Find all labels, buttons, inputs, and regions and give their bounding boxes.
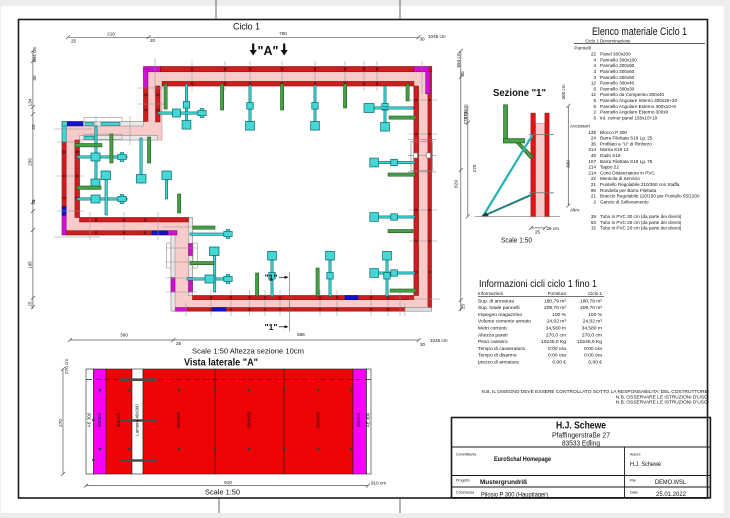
- svg-text:210: 210: [107, 32, 115, 37]
- svg-text:Pannello 300x40: Pannello 300x40: [600, 81, 635, 86]
- svg-text:Ciclo 1: Ciclo 1: [233, 22, 260, 32]
- svg-text:2: 2: [593, 199, 596, 204]
- svg-text:Sup. totale pannelli: Sup. totale pannelli: [478, 305, 520, 311]
- svg-text:Puntello Regolabile 210/360 co: Puntello Regolabile 210/360 con Staffa: [600, 182, 680, 187]
- svg-text:910: 910: [224, 480, 232, 485]
- svg-text:24,02 m³: 24,02 m³: [583, 319, 603, 325]
- svg-text:Volume cemento armato: Volume cemento armato: [478, 319, 531, 325]
- svg-text:270,0 cm: 270,0 cm: [582, 332, 602, 338]
- svg-text:Informazioni: Informazioni: [478, 291, 503, 296]
- svg-text:25: 25: [176, 341, 182, 346]
- svg-text:300 cm: 300 cm: [561, 84, 566, 99]
- svg-text:5: 5: [593, 98, 596, 103]
- svg-text:Altro: Altro: [570, 208, 580, 213]
- svg-text:Panel 300x200: Panel 300x200: [600, 52, 631, 57]
- svg-text:270: 270: [58, 419, 63, 427]
- svg-text:Pilosio P 300 (Hauptlager): Pilosio P 300 (Hauptlager): [481, 491, 548, 498]
- svg-text:Morsa S19 13: Morsa S19 13: [600, 147, 629, 152]
- svg-text:20: 20: [150, 38, 156, 43]
- svg-text:12: 12: [591, 81, 597, 86]
- svg-text:File: File: [630, 479, 636, 483]
- svg-text:25: 25: [31, 199, 36, 205]
- svg-text:Dado S19: Dado S19: [600, 153, 621, 158]
- svg-text:prezzo di armatura: prezzo di armatura: [478, 360, 519, 366]
- svg-text:6: 6: [593, 115, 596, 120]
- svg-text:270 cm: 270 cm: [463, 104, 468, 119]
- svg-text:Pannello da Compenso 300x40: Pannello da Compenso 300x40: [600, 92, 665, 97]
- svg-text:Autore: Autore: [630, 453, 641, 457]
- svg-text:0,00 €: 0,00 €: [552, 360, 566, 366]
- svg-text:1045 cm: 1045 cm: [430, 338, 448, 343]
- svg-text:N.B. OSSERVARE LE ISTRUZIONI D: N.B. OSSERVARE LE ISTRUZIONI D'USO!: [616, 394, 709, 400]
- svg-text:"1": "1": [265, 322, 278, 332]
- svg-text:135: 135: [588, 130, 596, 135]
- svg-text:Ciclo 1: Ciclo 1: [588, 291, 602, 296]
- svg-text:Vista laterale "A": Vista laterale "A": [184, 358, 258, 369]
- svg-text:Tubo in PVC 25 cm (da parte de: Tubo in PVC 25 cm (da parte dei clienti): [600, 220, 682, 225]
- svg-text:134: 134: [28, 98, 33, 106]
- svg-text:30: 30: [32, 75, 37, 81]
- svg-text:36: 36: [591, 141, 597, 146]
- svg-text:0:00 ora: 0:00 ora: [584, 346, 602, 352]
- svg-text:Metri correnti: Metri correnti: [478, 326, 507, 332]
- svg-text:Committente: Committente: [456, 453, 476, 457]
- svg-text:Tappo 22: Tappo 22: [600, 165, 619, 170]
- svg-text:H.J. Schewe: H.J. Schewe: [630, 461, 661, 468]
- svg-text:Lamiera 40x300: Lamiera 40x300: [135, 404, 140, 436]
- svg-text:200x300: 200x300: [316, 411, 321, 428]
- svg-text:Accessori: Accessori: [570, 124, 590, 129]
- svg-text:0:00 ora: 0:00 ora: [548, 346, 566, 352]
- svg-text:DEMO.WSL: DEMO.WSL: [655, 479, 686, 486]
- svg-text:3: 3: [593, 69, 596, 74]
- svg-text:Peso cassero: Peso cassero: [478, 339, 508, 345]
- svg-text:200x300: 200x300: [176, 411, 181, 428]
- svg-text:3: 3: [593, 75, 596, 80]
- svg-text:Pannello 300x30: Pannello 300x30: [600, 86, 635, 91]
- svg-text:270: 270: [472, 164, 477, 172]
- svg-text:300: 300: [566, 160, 571, 168]
- svg-text:270 cm: 270 cm: [64, 359, 69, 374]
- svg-text:34,580 m: 34,580 m: [546, 326, 566, 332]
- svg-text:10245,0 Kg: 10245,0 Kg: [577, 339, 602, 345]
- svg-text:0:00 ora: 0:00 ora: [548, 353, 566, 359]
- svg-text:34,580 m: 34,580 m: [582, 326, 602, 332]
- svg-text:Mustergrundriß: Mustergrundriß: [480, 479, 527, 486]
- svg-text:40x300: 40x300: [356, 412, 361, 427]
- svg-text:15: 15: [591, 226, 597, 231]
- svg-text:Pannello 300x90: Pannello 300x90: [600, 63, 635, 68]
- svg-text:910 cm: 910 cm: [371, 481, 386, 486]
- svg-text:"1": "1": [265, 273, 278, 283]
- svg-text:214: 214: [588, 165, 596, 170]
- svg-text:214: 214: [588, 147, 596, 152]
- svg-text:Sezione "1": Sezione "1": [493, 87, 546, 99]
- svg-text:Pannello 300x50: Pannello 300x50: [600, 75, 635, 80]
- svg-text:Ciclo 1 Denominazione: Ciclo 1 Denominazione: [585, 38, 631, 43]
- svg-text:180,79 m²: 180,79 m²: [580, 298, 602, 304]
- svg-text:21: 21: [591, 182, 597, 187]
- svg-text:Pannello Angolare Esterno 300x: Pannello Angolare Esterno 300x10+5: [600, 104, 676, 109]
- svg-text:1045 cm: 1045 cm: [428, 34, 446, 39]
- svg-text:Impegno magazzino: Impegno magazzino: [478, 312, 522, 318]
- svg-text:780: 780: [279, 31, 287, 36]
- svg-text:83533 Edling: 83533 Edling: [562, 438, 600, 447]
- svg-text:22: 22: [591, 176, 597, 181]
- svg-text:107: 107: [588, 159, 596, 164]
- svg-text:39: 39: [591, 214, 597, 219]
- svg-text:AE 300: AE 300: [366, 412, 371, 427]
- svg-text:90x300: 90x300: [116, 412, 121, 427]
- svg-text:Int. corner panel 150x10+10: Int. corner panel 150x10+10: [600, 115, 658, 120]
- svg-text:24: 24: [591, 136, 597, 141]
- svg-text:25: 25: [535, 229, 541, 234]
- svg-text:25 cm: 25 cm: [547, 226, 560, 231]
- svg-text:25: 25: [71, 39, 77, 44]
- svg-text:665: 665: [297, 332, 305, 337]
- svg-text:10245,0 Kg: 10245,0 Kg: [541, 339, 566, 345]
- svg-text:4: 4: [593, 63, 596, 68]
- svg-text:Tubo in PVC 30 cm (da parte de: Tubo in PVC 30 cm (da parte dei clienti): [600, 214, 682, 219]
- svg-text:2: 2: [593, 110, 596, 115]
- svg-text:Blocco P 300: Blocco P 300: [600, 130, 627, 135]
- svg-text:Progetto: Progetto: [456, 479, 470, 483]
- svg-text:25.01.2022: 25.01.2022: [656, 491, 686, 498]
- svg-text:Barra Filettata S19 Lg. 25: Barra Filettata S19 Lg. 25: [600, 136, 653, 141]
- svg-text:Tubo in PVC 20 cm (da parte de: Tubo in PVC 20 cm (da parte dei clienti): [600, 226, 682, 231]
- svg-text:694 cm: 694 cm: [456, 52, 461, 67]
- svg-text:Barra Filettata S19 Lg. 75: Barra Filettata S19 Lg. 75: [600, 159, 653, 164]
- svg-text:40x300: 40x300: [97, 412, 102, 427]
- svg-text:30: 30: [420, 342, 426, 347]
- svg-text:30: 30: [420, 37, 426, 42]
- svg-text:53: 53: [591, 220, 597, 225]
- svg-text:20: 20: [31, 124, 36, 130]
- svg-text:N.B. OSSERVARE LE ISTRUZIONI D: N.B. OSSERVARE LE ISTRUZIONI D'USO!: [616, 400, 709, 406]
- svg-text:N.B. IL DISEGNO DEVE ESSERE CO: N.B. IL DISEGNO DEVE ESSERE CONTROLLATO …: [482, 389, 710, 395]
- svg-text:Rondella per Barra Filettata: Rondella per Barra Filettata: [600, 188, 657, 193]
- svg-text:209,70 m²: 209,70 m²: [544, 305, 566, 311]
- svg-text:25: 25: [28, 301, 33, 307]
- svg-text:12: 12: [591, 92, 597, 97]
- svg-text:EuroSchal Homepage: EuroSchal Homepage: [494, 456, 551, 463]
- svg-text:195: 195: [28, 261, 33, 269]
- svg-text:AE 300: AE 300: [87, 412, 92, 427]
- svg-text:Sup. di armatura: Sup. di armatura: [478, 298, 514, 304]
- svg-text:Gancio di Sollevamento: Gancio di Sollevamento: [600, 199, 649, 204]
- svg-text:22: 22: [591, 52, 597, 57]
- svg-text:4: 4: [593, 57, 596, 62]
- svg-text:Pannello 300x60: Pannello 300x60: [600, 69, 635, 74]
- svg-text:Pannello Angolare Interno 300x: Pannello Angolare Interno 300x25+20: [600, 98, 677, 103]
- svg-text:Pannello 300x100: Pannello 300x100: [600, 57, 637, 62]
- svg-text:300: 300: [120, 333, 128, 338]
- svg-text:Mensola di Servicio: Mensola di Servicio: [600, 176, 640, 181]
- svg-text:Scale 1:50 Altezza sezione 1: Scale 1:50 Altezza sezione 10cm: [192, 347, 304, 356]
- svg-text:694 cm: 694 cm: [32, 47, 37, 62]
- svg-text:Braccio Regolabile 110/150 per: Braccio Regolabile 110/150 per Puntello …: [600, 194, 700, 199]
- svg-text:100 %: 100 %: [588, 312, 603, 318]
- svg-text:0:00 ora: 0:00 ora: [584, 353, 602, 359]
- svg-text:Scale 1:50: Scale 1:50: [205, 488, 240, 497]
- svg-text:"A": "A": [258, 44, 279, 58]
- svg-text:96: 96: [591, 188, 597, 193]
- svg-text:Tempo di disarmo: Tempo di disarmo: [478, 353, 517, 359]
- svg-text:25: 25: [461, 304, 466, 310]
- svg-text:24,02 m³: 24,02 m³: [547, 319, 567, 325]
- svg-text:214: 214: [588, 170, 596, 175]
- svg-text:Data: Data: [630, 490, 638, 494]
- svg-text:Cono Distanziatore in PVC: Cono Distanziatore in PVC: [600, 170, 655, 175]
- svg-text:180,79 m²: 180,79 m²: [544, 298, 566, 304]
- svg-text:Informazioni cicli ciclo 1 fi: Informazioni cicli ciclo 1 fino 1: [479, 279, 597, 290]
- svg-text:Altezza pareti: Altezza pareti: [478, 332, 508, 338]
- svg-text:Pannello Angolare Esterno 300x: Pannello Angolare Esterno 300x0: [600, 110, 669, 115]
- svg-text:Pannelli: Pannelli: [574, 45, 590, 50]
- svg-text:629: 629: [454, 180, 459, 188]
- svg-text:Fornitura: Fornitura: [548, 291, 567, 296]
- svg-text:270,0 cm: 270,0 cm: [546, 332, 566, 338]
- svg-text:21: 21: [591, 194, 597, 199]
- svg-text:30: 30: [460, 71, 465, 77]
- svg-text:6: 6: [593, 86, 596, 91]
- svg-text:Tempo di casseratura: Tempo di casseratura: [478, 346, 525, 352]
- svg-text:200x300: 200x300: [247, 411, 252, 428]
- svg-text:Scale 1:50: Scale 1:50: [501, 236, 532, 245]
- svg-text:5: 5: [593, 104, 596, 109]
- svg-text:Profilato a "U" di Rinforzo: Profilato a "U" di Rinforzo: [600, 141, 652, 146]
- svg-text:Commessa: Commessa: [456, 490, 474, 494]
- svg-text:49: 49: [591, 153, 597, 158]
- svg-text:255: 255: [28, 158, 33, 166]
- svg-text:100 %: 100 %: [552, 312, 567, 318]
- svg-text:0,00 €: 0,00 €: [588, 360, 602, 366]
- svg-text:Elenco materiale Ciclo 1: Elenco materiale Ciclo 1: [592, 26, 687, 38]
- svg-text:209,70 m²: 209,70 m²: [580, 305, 602, 311]
